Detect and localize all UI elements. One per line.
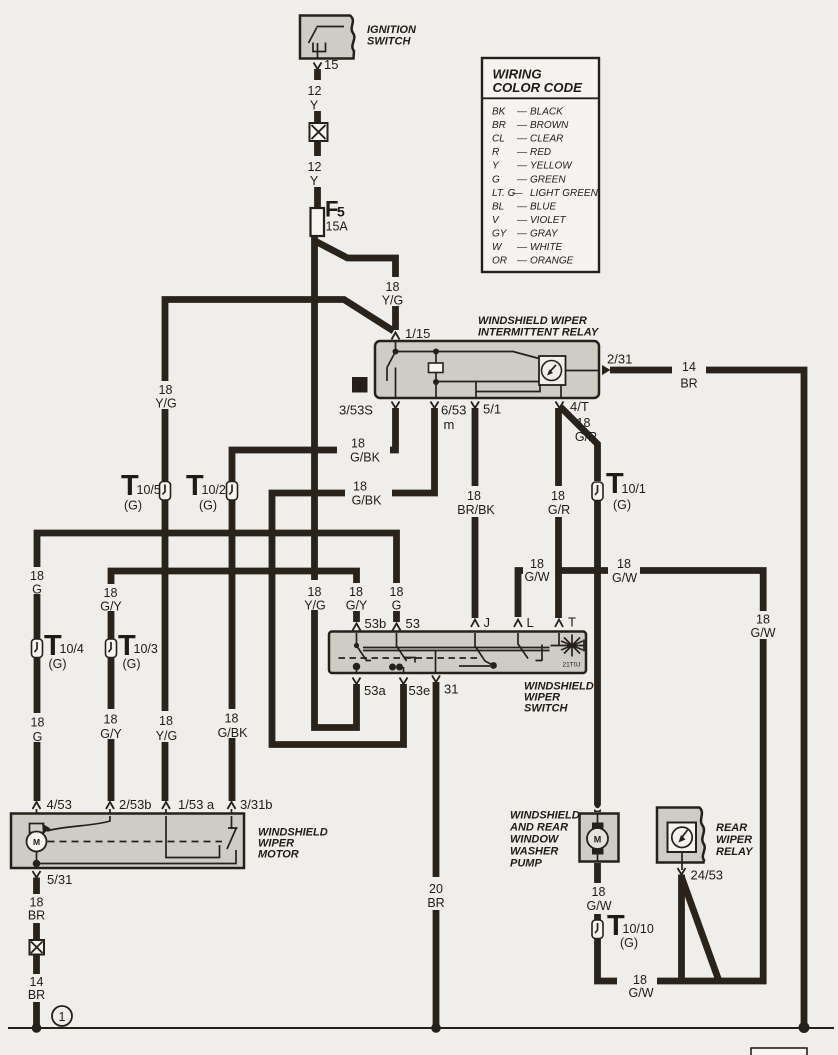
svg-text:G/BK: G/BK xyxy=(218,726,249,740)
svg-text:3/53S: 3/53S xyxy=(339,403,373,418)
svg-text:G/Y: G/Y xyxy=(100,727,122,741)
svg-text:6/53: 6/53 xyxy=(441,403,466,418)
svg-text:CL: CL xyxy=(492,134,505,145)
svg-text:IGNITION: IGNITION xyxy=(367,24,417,36)
svg-text:18: 18 xyxy=(592,885,606,899)
svg-text:BR/BK: BR/BK xyxy=(457,503,495,517)
svg-text:18: 18 xyxy=(225,712,239,726)
svg-text:G: G xyxy=(392,599,402,613)
svg-text:18: 18 xyxy=(617,557,631,571)
svg-text:18: 18 xyxy=(756,613,770,627)
svg-text:20: 20 xyxy=(429,882,443,896)
svg-text:—: — xyxy=(516,215,528,226)
svg-text:Y/G: Y/G xyxy=(155,397,177,411)
svg-text:RED: RED xyxy=(530,147,551,158)
svg-text:BR: BR xyxy=(427,896,444,910)
svg-text:G/BK: G/BK xyxy=(350,451,381,465)
svg-text:18: 18 xyxy=(104,713,118,727)
svg-text:G/R: G/R xyxy=(575,430,597,444)
svg-text:—: — xyxy=(516,201,528,212)
svg-text:14: 14 xyxy=(682,360,696,374)
svg-text:5/31: 5/31 xyxy=(47,872,72,887)
svg-text:YELLOW: YELLOW xyxy=(530,161,573,172)
svg-text:WINDSHIELD WIPER: WINDSHIELD WIPER xyxy=(478,315,587,327)
svg-text:18: 18 xyxy=(390,585,404,599)
svg-text:18: 18 xyxy=(351,437,365,451)
svg-text:J: J xyxy=(484,615,491,630)
svg-text:PUMP: PUMP xyxy=(510,858,542,870)
svg-text:10/2: 10/2 xyxy=(202,483,226,497)
svg-text:—: — xyxy=(516,134,528,145)
svg-text:18: 18 xyxy=(386,280,400,294)
svg-text:VIOLET: VIOLET xyxy=(530,215,566,226)
svg-text:1/53 a: 1/53 a xyxy=(178,797,215,812)
svg-text:MOTOR: MOTOR xyxy=(258,849,299,861)
svg-text:53e: 53e xyxy=(409,683,431,698)
svg-text:M: M xyxy=(594,835,602,845)
svg-text:53a: 53a xyxy=(364,683,386,698)
svg-text:GY: GY xyxy=(492,229,508,240)
svg-text:BR: BR xyxy=(680,377,697,391)
svg-text:T: T xyxy=(568,615,576,630)
svg-text:BL: BL xyxy=(492,201,504,212)
svg-text:G: G xyxy=(492,174,500,185)
svg-text:10/10: 10/10 xyxy=(623,922,654,936)
svg-text:G/W: G/W xyxy=(612,571,637,585)
svg-text:WASHER: WASHER xyxy=(510,846,558,858)
svg-text:G/W: G/W xyxy=(629,986,654,1000)
svg-text:15A: 15A xyxy=(326,220,349,234)
svg-text:ORANGE: ORANGE xyxy=(530,256,574,267)
svg-text:BR: BR xyxy=(28,988,45,1002)
svg-text:—: — xyxy=(516,256,528,267)
svg-text:18: 18 xyxy=(30,896,44,910)
svg-text:BR: BR xyxy=(28,909,45,923)
svg-text:18: 18 xyxy=(349,585,363,599)
svg-text:12: 12 xyxy=(308,160,322,174)
svg-text:G/W: G/W xyxy=(751,626,776,640)
svg-text:—: — xyxy=(516,229,528,240)
svg-text:WINDOW: WINDOW xyxy=(510,834,560,846)
svg-text:GRAY: GRAY xyxy=(530,229,559,240)
svg-text:Y/G: Y/G xyxy=(156,729,178,743)
svg-text:18: 18 xyxy=(530,557,544,571)
svg-text:1: 1 xyxy=(59,1010,66,1024)
svg-text:18: 18 xyxy=(30,569,44,583)
svg-text:Y/G: Y/G xyxy=(382,294,404,308)
svg-text:5/1: 5/1 xyxy=(483,402,501,417)
svg-text:(G): (G) xyxy=(199,499,217,513)
svg-text:24/53: 24/53 xyxy=(691,868,724,883)
svg-text:—: — xyxy=(512,188,524,199)
svg-text:10/1: 10/1 xyxy=(622,482,646,496)
svg-text:m: m xyxy=(444,417,455,432)
svg-text:5: 5 xyxy=(337,204,345,220)
svg-text:WIPER: WIPER xyxy=(716,834,752,846)
svg-text:53: 53 xyxy=(406,616,420,631)
svg-text:(G): (G) xyxy=(124,499,142,513)
svg-text:18: 18 xyxy=(353,480,367,494)
svg-text:G: G xyxy=(33,730,43,744)
svg-text:18: 18 xyxy=(31,716,45,730)
svg-text:4/53: 4/53 xyxy=(47,797,72,812)
svg-text:—: — xyxy=(516,147,528,158)
svg-text:12: 12 xyxy=(308,84,322,98)
svg-text:18: 18 xyxy=(159,383,173,397)
svg-text:2/31: 2/31 xyxy=(607,352,632,367)
svg-text:10/5: 10/5 xyxy=(137,483,161,497)
svg-text:INTERMITTENT RELAY: INTERMITTENT RELAY xyxy=(478,327,600,339)
svg-text:AND REAR: AND REAR xyxy=(509,822,568,834)
svg-text:SWITCH: SWITCH xyxy=(524,703,568,715)
svg-text:COLOR CODE: COLOR CODE xyxy=(493,80,584,95)
svg-text:CLEAR: CLEAR xyxy=(530,134,563,145)
svg-text:REAR: REAR xyxy=(716,822,747,834)
svg-text:G/W: G/W xyxy=(525,570,550,584)
svg-text:18: 18 xyxy=(467,489,481,503)
svg-text:4/T: 4/T xyxy=(570,399,589,414)
svg-text:G/Y: G/Y xyxy=(346,599,368,613)
svg-text:BLUE: BLUE xyxy=(530,201,556,212)
svg-text:M: M xyxy=(33,837,40,847)
svg-text:G/R: G/R xyxy=(548,503,570,517)
svg-text:—: — xyxy=(516,242,528,253)
svg-text:W: W xyxy=(492,242,503,253)
svg-text:RELAY: RELAY xyxy=(716,846,754,858)
svg-text:31: 31 xyxy=(444,682,458,697)
svg-text:3/31b: 3/31b xyxy=(240,797,273,812)
svg-text:(G): (G) xyxy=(620,936,638,950)
svg-text:18: 18 xyxy=(551,489,565,503)
svg-text:18: 18 xyxy=(308,585,322,599)
svg-text:—: — xyxy=(516,161,528,172)
svg-text:21T0J: 21T0J xyxy=(562,662,580,669)
svg-text:10/4: 10/4 xyxy=(60,642,84,656)
svg-text:Y: Y xyxy=(310,174,319,188)
svg-text:Y: Y xyxy=(310,99,319,113)
svg-text:18: 18 xyxy=(633,973,647,987)
svg-text:15: 15 xyxy=(324,57,338,72)
svg-text:18: 18 xyxy=(159,714,173,728)
svg-text:18: 18 xyxy=(577,416,591,430)
svg-text:OR: OR xyxy=(492,256,507,267)
svg-text:SWITCH: SWITCH xyxy=(367,36,411,48)
svg-text:WHITE: WHITE xyxy=(530,242,563,253)
svg-text:1: 1 xyxy=(356,379,364,394)
svg-text:LIGHT GREEN: LIGHT GREEN xyxy=(530,188,599,199)
svg-text:53b: 53b xyxy=(365,616,387,631)
svg-text:10/3: 10/3 xyxy=(134,642,158,656)
svg-text:BROWN: BROWN xyxy=(530,120,569,131)
svg-text:WINDSHIELD: WINDSHIELD xyxy=(510,810,580,822)
svg-text:(G): (G) xyxy=(49,657,67,671)
svg-text:—: — xyxy=(516,107,528,118)
svg-text:G/BK: G/BK xyxy=(352,494,383,508)
svg-text:(G): (G) xyxy=(123,657,141,671)
svg-text:L: L xyxy=(527,615,534,630)
svg-text:18: 18 xyxy=(104,586,118,600)
svg-text:14: 14 xyxy=(30,975,44,989)
svg-text:2/53b: 2/53b xyxy=(119,797,152,812)
svg-text:Y/G: Y/G xyxy=(304,599,326,613)
svg-text:BK: BK xyxy=(492,107,507,118)
svg-text:1/15: 1/15 xyxy=(405,326,430,341)
svg-text:(G): (G) xyxy=(613,498,631,512)
svg-text:R: R xyxy=(492,147,499,158)
svg-text:BLACK: BLACK xyxy=(530,107,564,118)
svg-text:—: — xyxy=(516,120,528,131)
svg-text:—: — xyxy=(516,174,528,185)
svg-text:BR: BR xyxy=(492,120,506,131)
svg-text:GREEN: GREEN xyxy=(530,174,566,185)
